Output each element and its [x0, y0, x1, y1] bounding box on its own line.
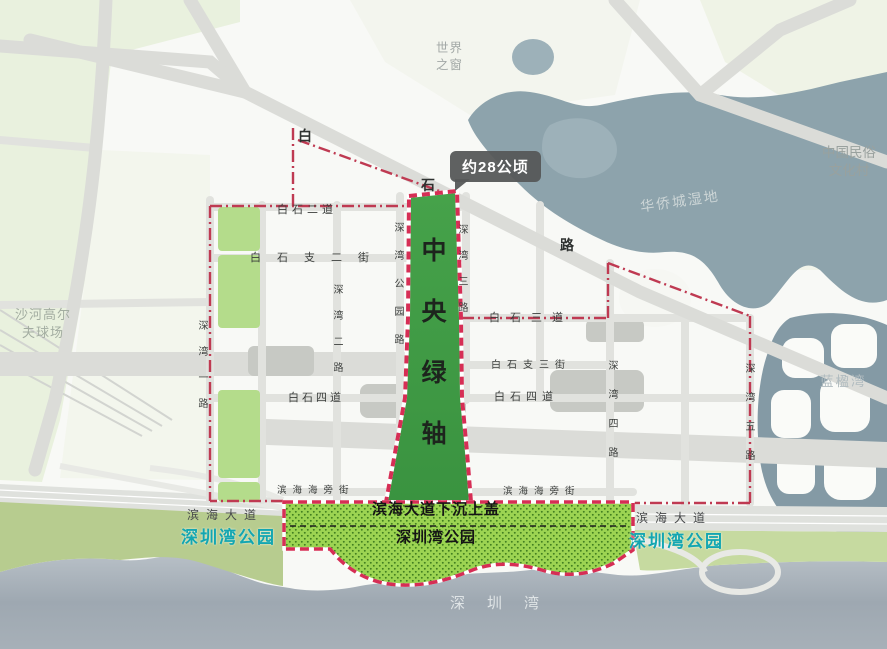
- binhai-blvd-right-label: 滨海大道: [636, 510, 712, 526]
- central-axis-label: 中央绿轴: [419, 237, 444, 481]
- baishi-3dao-label: 白石三道: [489, 311, 573, 326]
- strip-line1-label: 滨海大道下沉上盖: [372, 500, 500, 520]
- folk-village-label: 中国民俗 文化村: [814, 144, 884, 180]
- planning-map: 世界 之窗 中国民俗 文化村 华侨城湿地 沙河高尔 夫球场 蓝楹湾 深圳湾 约2…: [0, 0, 887, 649]
- binhai-blvd-left-label: 滨海大道: [187, 507, 263, 523]
- shahe-golf-label: 沙河高尔 夫球场: [12, 306, 74, 341]
- szbay-park-right-label: 深圳湾公园: [629, 531, 724, 554]
- baishi-4dao-left-label: 白石四道: [288, 391, 344, 406]
- haipang-right-label: 滨海海旁街: [503, 486, 581, 499]
- area-callout-text: 约28公顷: [462, 159, 529, 176]
- shenwan-5-label: 深湾五路: [743, 363, 753, 479]
- szbay-park-left-label: 深圳湾公园: [181, 527, 276, 550]
- area-callout: 约28公顷: [450, 151, 541, 182]
- shenwan-2-label: 深湾二路: [331, 284, 341, 388]
- shenwan-3-label: 深湾三路: [456, 224, 466, 328]
- baishi-zhi2-label: 白石支二街: [250, 251, 385, 266]
- blue-bay-label: 蓝楹湾: [820, 373, 867, 391]
- baishi-zhi3-label: 白石支三街: [491, 359, 571, 373]
- baishi-road-char2: 石: [421, 176, 435, 195]
- callout-tail-icon: [455, 179, 470, 191]
- strip-line2-label: 深圳湾公园: [396, 528, 476, 548]
- shenwan-4-label: 深湾四路: [606, 360, 616, 476]
- haipang-left-label: 滨海海旁街: [277, 485, 355, 498]
- shenwan-1-label: 深湾一路: [196, 320, 206, 424]
- world-window-pond: [512, 39, 554, 75]
- baishi-road-char1: 白: [298, 127, 312, 146]
- shenzhen-bay-sea-label: 深圳湾: [450, 594, 561, 614]
- world-window-label: 世界 之窗: [436, 40, 463, 74]
- baishi-2dao-label: 白石二道: [277, 203, 337, 218]
- shenwan-park-rd-label: 深湾公园路: [392, 222, 402, 362]
- baishi-4dao-right-label: 白石四道: [494, 390, 558, 405]
- baishi-road-char3: 路: [560, 236, 574, 255]
